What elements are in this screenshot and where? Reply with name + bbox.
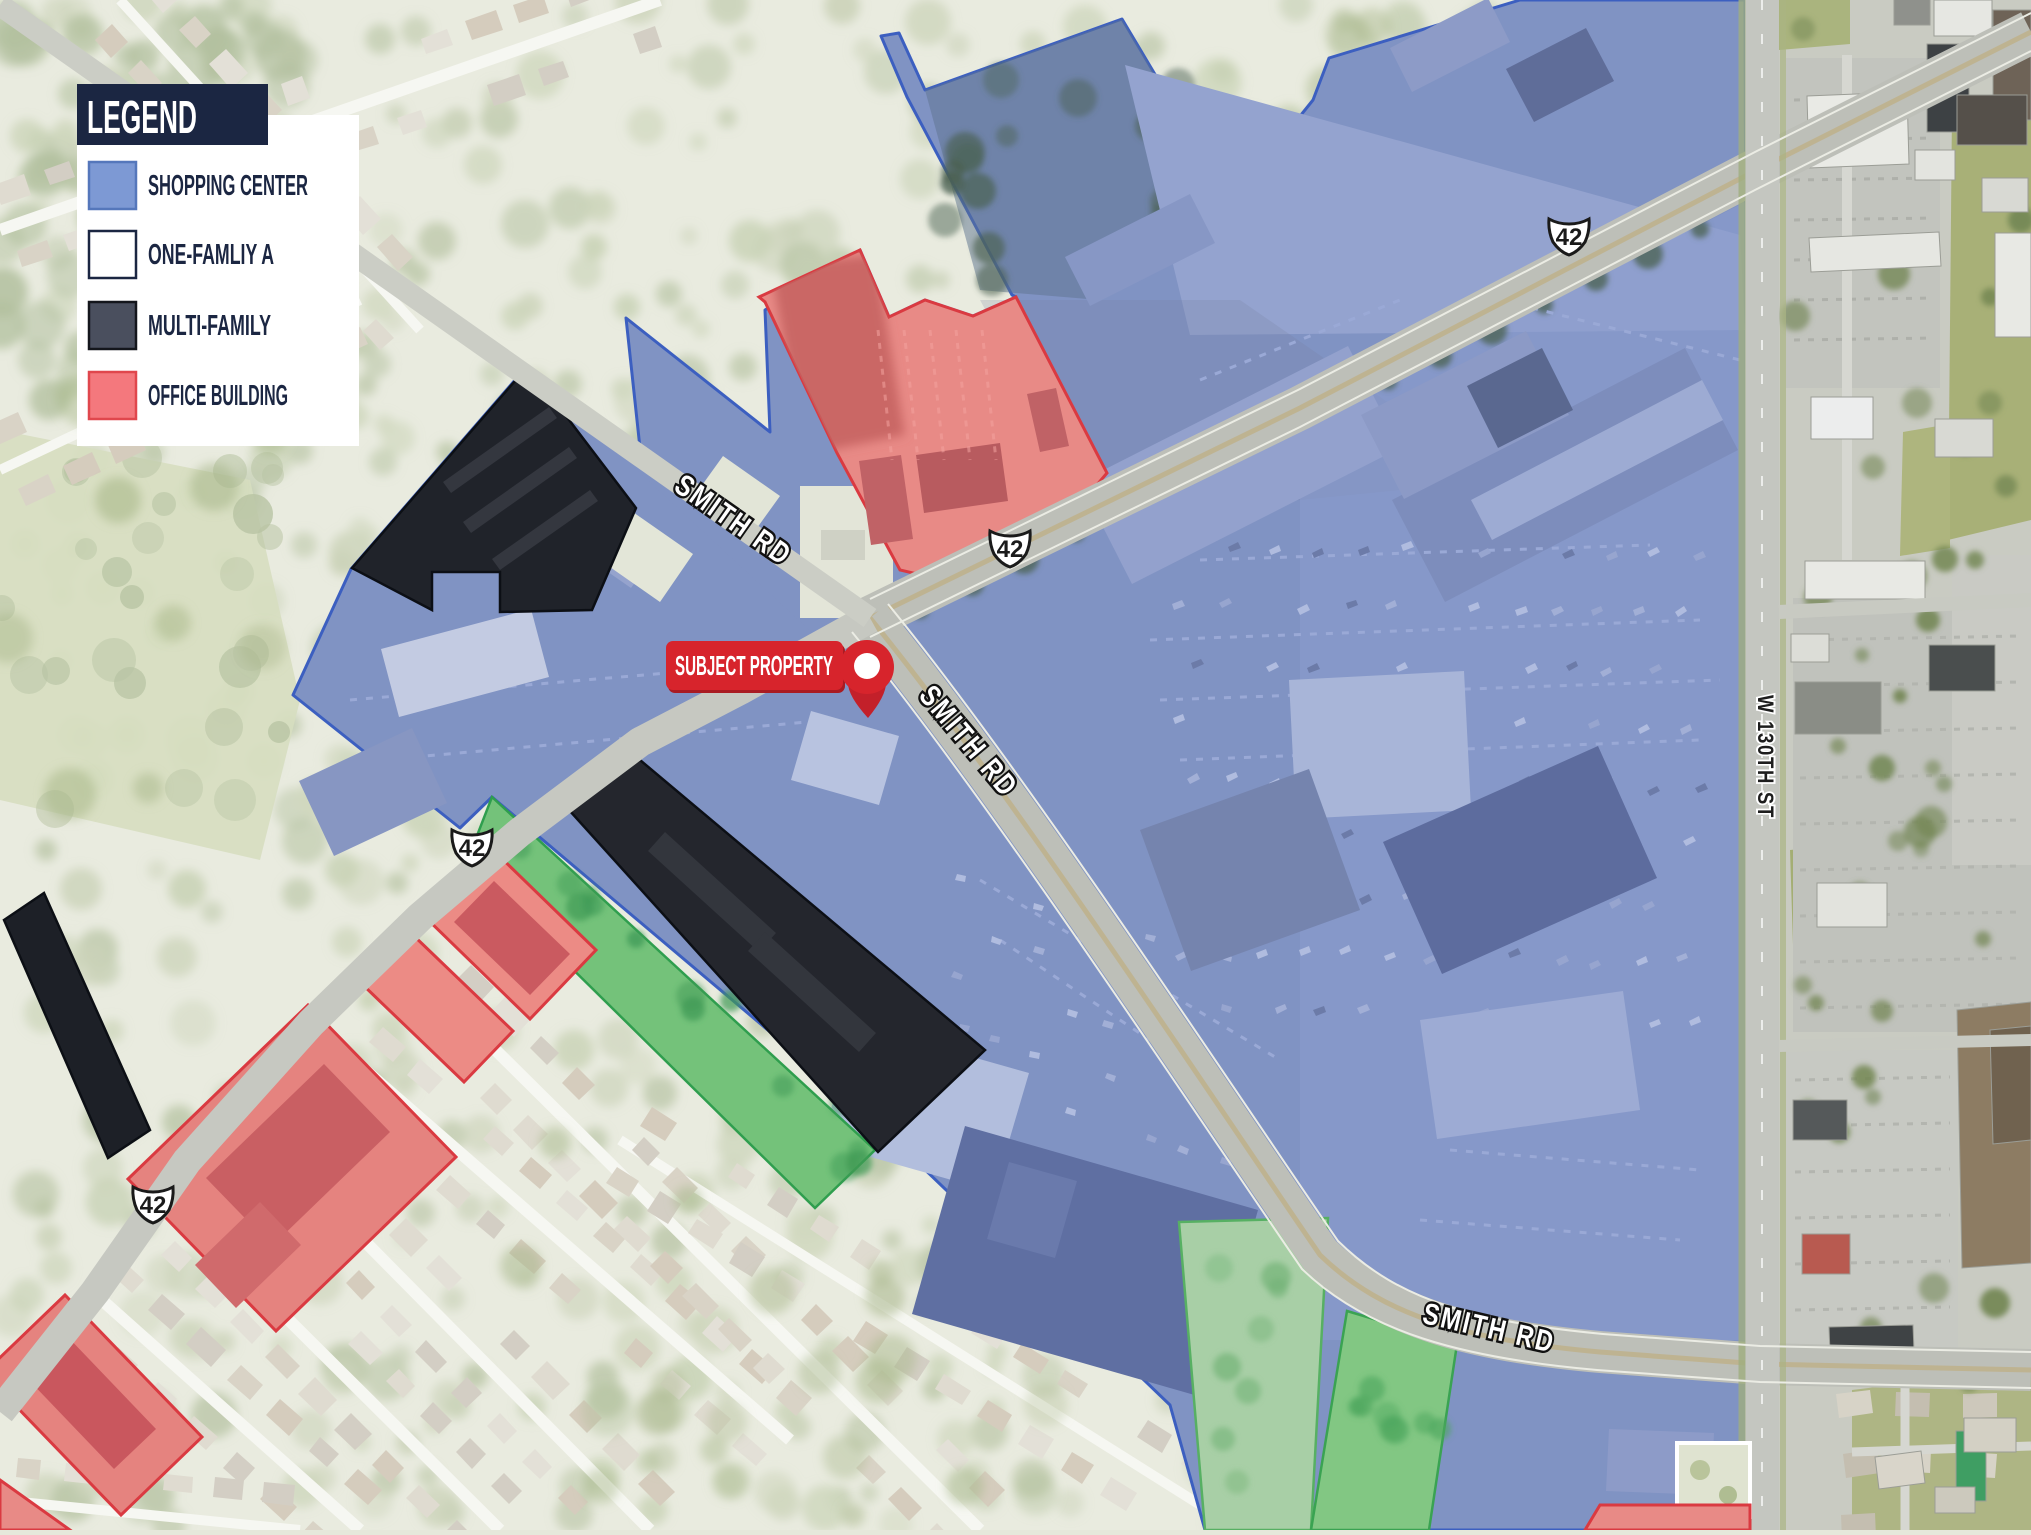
- svg-text:42: 42: [1556, 224, 1583, 251]
- svg-text:W 130TH ST: W 130TH ST: [1753, 695, 1778, 819]
- svg-text:OFFICE BUILDING: OFFICE BUILDING: [148, 380, 288, 412]
- svg-text:LEGEND: LEGEND: [87, 91, 197, 143]
- svg-text:42: 42: [997, 536, 1024, 563]
- svg-text:SHOPPING CENTER: SHOPPING CENTER: [148, 170, 308, 202]
- svg-text:SUBJECT PROPERTY: SUBJECT PROPERTY: [675, 650, 833, 681]
- svg-text:ONE-FAMLIY A: ONE-FAMLIY A: [148, 239, 274, 271]
- svg-text:42: 42: [140, 1192, 167, 1219]
- svg-text:42: 42: [459, 835, 486, 862]
- svg-text:MULTI-FAMILY: MULTI-FAMILY: [148, 310, 271, 342]
